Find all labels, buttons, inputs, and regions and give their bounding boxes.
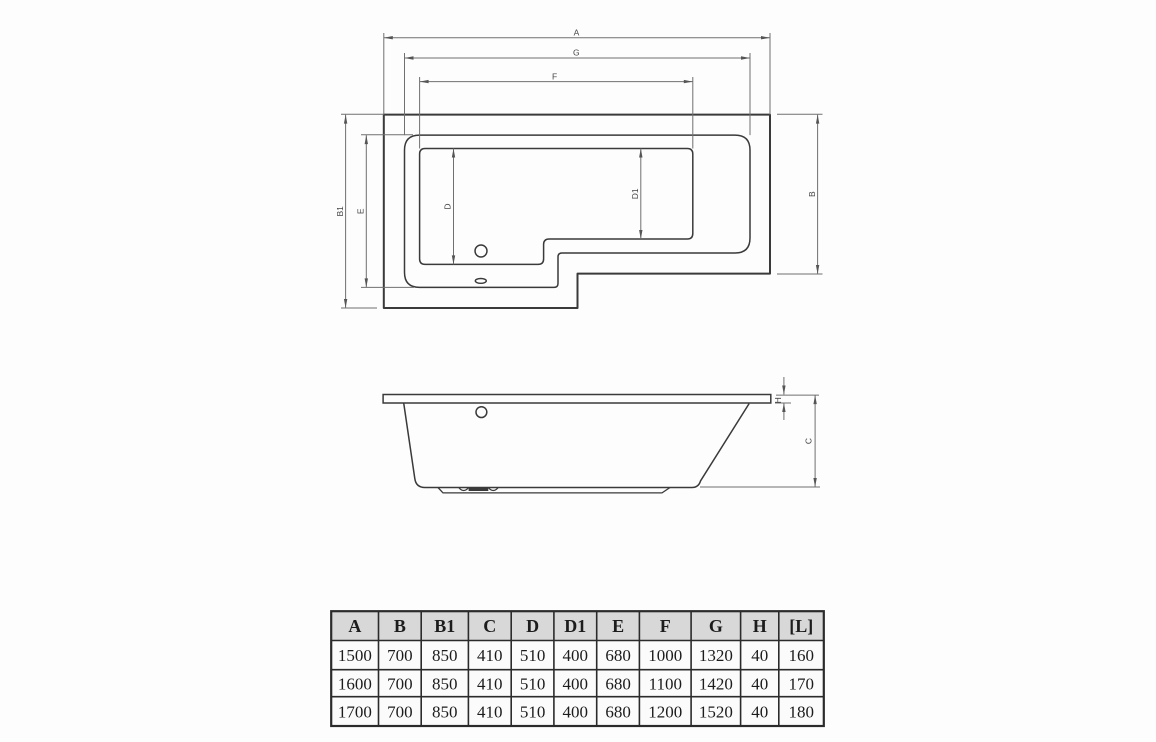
svg-text:B: B (394, 616, 406, 636)
svg-text:1500: 1500 (338, 646, 372, 665)
svg-text:1000: 1000 (648, 646, 682, 665)
svg-text:G: G (573, 48, 580, 58)
svg-text:700: 700 (387, 703, 413, 722)
svg-text:F: F (552, 71, 557, 81)
svg-text:B: B (807, 191, 817, 197)
svg-text:850: 850 (432, 703, 458, 722)
svg-text:170: 170 (789, 674, 815, 693)
svg-text:E: E (356, 208, 366, 214)
svg-text:1100: 1100 (649, 674, 682, 693)
svg-text:1420: 1420 (699, 674, 733, 693)
svg-text:410: 410 (477, 703, 503, 722)
svg-text:A: A (348, 616, 361, 636)
svg-text:D1: D1 (564, 616, 586, 636)
svg-text:700: 700 (387, 674, 413, 693)
svg-text:850: 850 (432, 646, 458, 665)
svg-text:400: 400 (563, 674, 589, 693)
svg-text:1320: 1320 (699, 646, 733, 665)
svg-text:A: A (574, 28, 580, 38)
svg-text:1700: 1700 (338, 703, 372, 722)
svg-text:410: 410 (477, 674, 503, 693)
svg-text:680: 680 (605, 703, 631, 722)
svg-text:H: H (753, 616, 767, 636)
svg-text:B1: B1 (434, 616, 455, 636)
svg-text:510: 510 (520, 674, 546, 693)
svg-text:400: 400 (563, 646, 589, 665)
svg-text:1200: 1200 (648, 703, 682, 722)
svg-text:1600: 1600 (338, 674, 372, 693)
svg-text:[L]: [L] (789, 616, 813, 636)
svg-text:160: 160 (789, 646, 815, 665)
svg-text:510: 510 (520, 703, 546, 722)
svg-text:680: 680 (605, 646, 631, 665)
svg-text:680: 680 (605, 674, 631, 693)
svg-text:40: 40 (751, 703, 768, 722)
svg-text:C: C (483, 616, 496, 636)
svg-text:F: F (660, 616, 671, 636)
svg-text:850: 850 (432, 674, 458, 693)
svg-text:1520: 1520 (699, 703, 733, 722)
svg-text:D: D (526, 616, 539, 636)
svg-text:410: 410 (477, 646, 503, 665)
svg-text:B1: B1 (335, 206, 345, 217)
svg-text:C: C (804, 438, 814, 444)
svg-text:40: 40 (751, 646, 768, 665)
svg-text:G: G (709, 616, 723, 636)
svg-text:D: D (443, 203, 453, 209)
svg-text:40: 40 (751, 674, 768, 693)
svg-text:H: H (773, 397, 783, 403)
svg-text:700: 700 (387, 646, 413, 665)
svg-text:D1: D1 (630, 188, 640, 199)
svg-text:510: 510 (520, 646, 546, 665)
svg-text:400: 400 (563, 703, 589, 722)
svg-text:E: E (612, 616, 624, 636)
svg-text:180: 180 (789, 703, 815, 722)
